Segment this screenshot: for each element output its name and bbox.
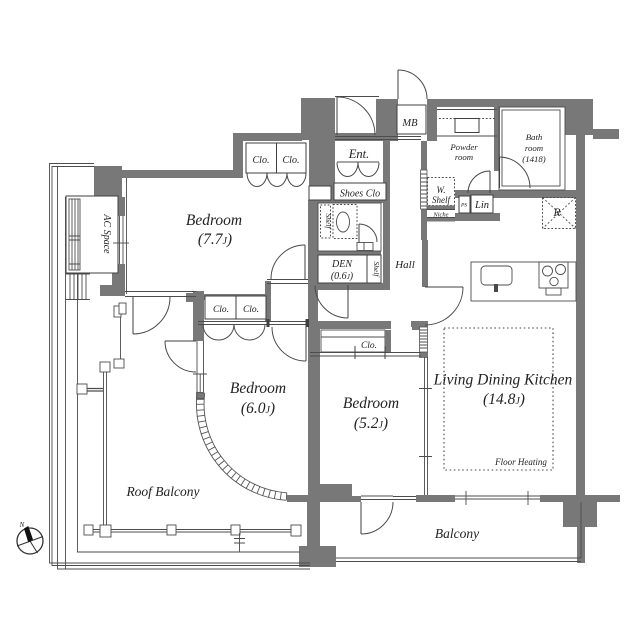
svg-text:Roof Balcony: Roof Balcony bbox=[125, 484, 199, 499]
svg-text:Shoes Clo: Shoes Clo bbox=[340, 189, 380, 200]
svg-text:Lin: Lin bbox=[474, 200, 489, 211]
svg-text:(1418): (1418) bbox=[522, 154, 546, 164]
svg-text:Hall: Hall bbox=[394, 259, 415, 271]
svg-text:PS: PS bbox=[460, 203, 467, 209]
svg-text:(5.2J): (5.2J) bbox=[354, 415, 388, 432]
svg-text:(6.0J): (6.0J) bbox=[241, 400, 275, 417]
svg-text:Balcony: Balcony bbox=[435, 526, 479, 541]
svg-text:MB: MB bbox=[401, 118, 418, 129]
svg-text:Clo.: Clo. bbox=[213, 305, 229, 315]
svg-text:Living Dining Kitchen: Living Dining Kitchen bbox=[433, 372, 573, 389]
svg-text:Bedroom: Bedroom bbox=[343, 395, 399, 412]
svg-text:Bath: Bath bbox=[526, 132, 543, 142]
svg-text:Shelf: Shelf bbox=[432, 195, 451, 205]
svg-text:Bedroom: Bedroom bbox=[230, 380, 286, 397]
svg-text:room: room bbox=[455, 152, 473, 162]
svg-text:Shelf: Shelf bbox=[372, 262, 381, 278]
svg-text:N: N bbox=[19, 521, 25, 529]
svg-text:Powder: Powder bbox=[449, 142, 478, 152]
svg-text:Shelf: Shelf bbox=[324, 214, 333, 230]
svg-text:W.: W. bbox=[437, 185, 446, 195]
svg-text:Clo.: Clo. bbox=[361, 341, 377, 351]
svg-text:DEN: DEN bbox=[331, 259, 353, 270]
svg-text:Clo.: Clo. bbox=[253, 155, 270, 166]
svg-text:(0.6J): (0.6J) bbox=[331, 271, 354, 282]
svg-text:Bedroom: Bedroom bbox=[186, 212, 242, 229]
svg-text:R: R bbox=[552, 207, 560, 219]
svg-text:Niche: Niche bbox=[432, 212, 448, 219]
svg-text:Floor Heating: Floor Heating bbox=[494, 457, 547, 467]
svg-text:Clo.: Clo. bbox=[243, 305, 259, 315]
svg-text:(7.7J): (7.7J) bbox=[198, 231, 232, 248]
svg-text:room: room bbox=[525, 143, 543, 153]
svg-text:AC Space: AC Space bbox=[101, 213, 112, 254]
svg-text:Clo.: Clo. bbox=[283, 155, 300, 166]
svg-text:Ent.: Ent. bbox=[348, 147, 369, 161]
